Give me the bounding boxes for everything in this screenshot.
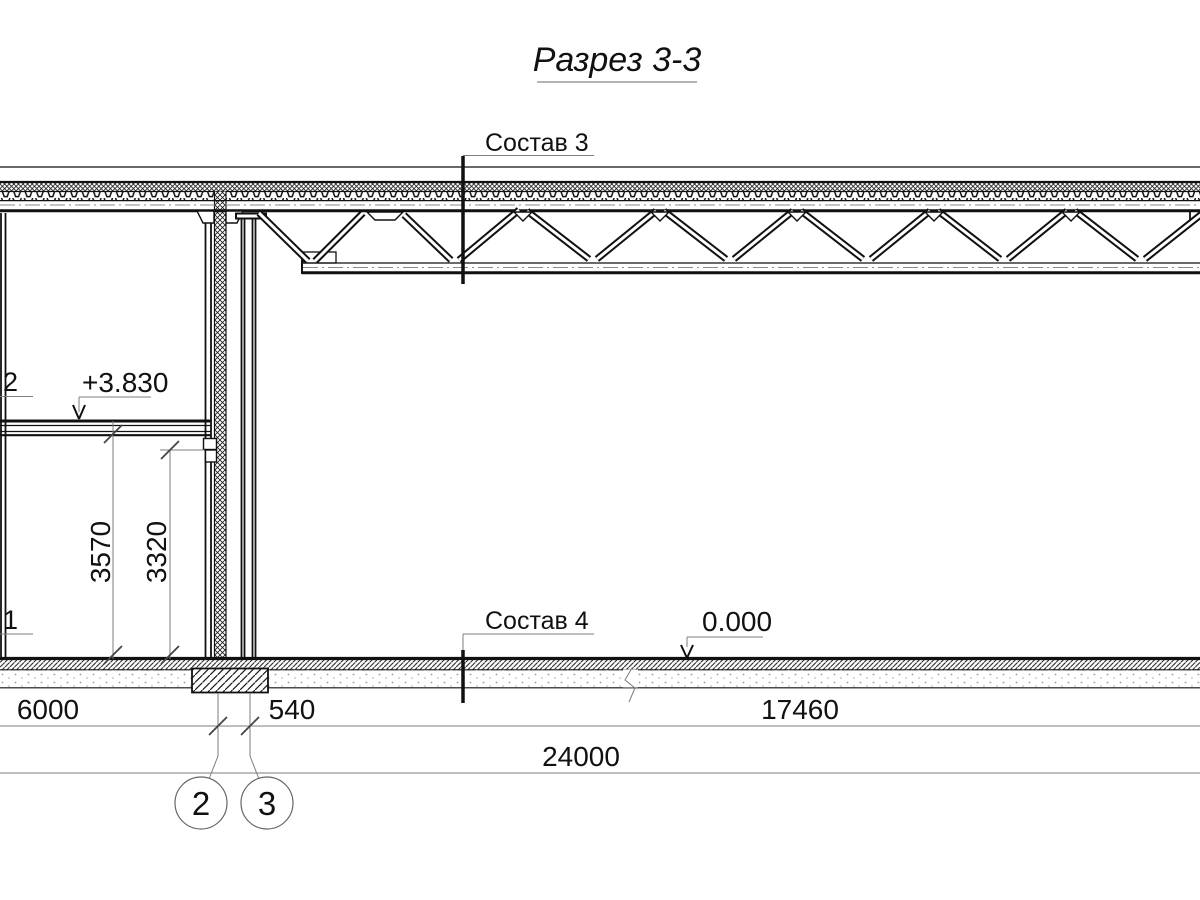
dimension-chain: 6000 540 17460 24000 — [0, 693, 1200, 773]
truss-diagonal — [597, 211, 656, 259]
dim-text-24000: 24000 — [542, 741, 620, 772]
cut-label-1-text: 1 — [3, 605, 18, 635]
dim-text-3570: 3570 — [85, 521, 116, 583]
floor-slab-upper — [0, 421, 212, 435]
axis-bubble-3: 3 — [241, 756, 293, 829]
section-drawing: 3570 3320 +3.830 0.000 Состав 3 Состав 4… — [0, 0, 1200, 900]
truss-diagonal — [938, 211, 1000, 259]
cut-label-1: 1 — [0, 605, 33, 635]
truss-top-chord — [0, 201, 1200, 211]
truss-diagonal — [259, 213, 308, 261]
truss-diagonal — [527, 211, 589, 259]
cut-label-2: 2 — [0, 367, 33, 397]
dim-text-3320: 3320 — [141, 521, 172, 583]
elevation-text-ground: 0.000 — [702, 606, 772, 637]
truss-diagonal — [315, 213, 363, 261]
ground-slab-bedding-band — [0, 670, 1200, 688]
truss-diagonal — [404, 215, 451, 260]
wall-corbel-left — [197, 211, 214, 223]
wall-panel — [215, 192, 227, 659]
truss-diagonal — [734, 211, 793, 259]
beam-seat — [204, 439, 217, 463]
truss-diagonal — [459, 210, 519, 260]
truss-diagonal — [871, 211, 930, 259]
truss-diagonal — [1145, 213, 1200, 259]
truss-bottom-chord — [302, 252, 1200, 274]
section-marker-sostav4: Состав 4 — [463, 607, 594, 703]
truss-diagonal — [1008, 211, 1067, 259]
vertical-dimensions: 3570 3320 — [85, 421, 204, 664]
cut-label-2-text: 2 — [3, 367, 18, 397]
section-title: Разрез 3-3 — [533, 41, 702, 82]
elevation-mark-ground: 0.000 — [681, 606, 772, 658]
ground-slab-hatch-band — [0, 660, 1200, 670]
dim-text-6000: 6000 — [17, 694, 79, 725]
dim-text-17460: 17460 — [761, 694, 839, 725]
break-symbol — [623, 668, 638, 702]
axis-label-3: 3 — [258, 785, 276, 822]
ground-slab — [0, 659, 1200, 688]
roof-assembly — [0, 167, 1200, 201]
steel-column — [242, 218, 256, 658]
truss-diagonal — [1075, 211, 1137, 259]
axis-bubble-2: 2 — [175, 756, 227, 829]
section-marker-sostav3: Состав 3 — [463, 129, 594, 284]
truss-gusset — [367, 212, 403, 220]
section-title-text: Разрез 3-3 — [533, 41, 702, 79]
drawing-canvas: 3570 3320 +3.830 0.000 Состав 3 Состав 4… — [0, 0, 1200, 900]
dim-text-540: 540 — [269, 694, 316, 725]
sostav4-label: Состав 4 — [485, 607, 589, 635]
truss-diagonal — [664, 211, 726, 259]
truss-web — [259, 210, 1200, 261]
foundation-block — [192, 669, 268, 693]
roof-deck-band — [0, 192, 1200, 201]
axis-label-2: 2 — [192, 785, 210, 822]
elevation-text-upper: +3.830 — [82, 367, 168, 398]
sostav3-label: Состав 3 — [485, 129, 589, 157]
elevation-mark-upper: +3.830 — [73, 367, 168, 419]
roof-screed-band — [0, 183, 1200, 192]
truss-diagonal — [801, 211, 863, 259]
